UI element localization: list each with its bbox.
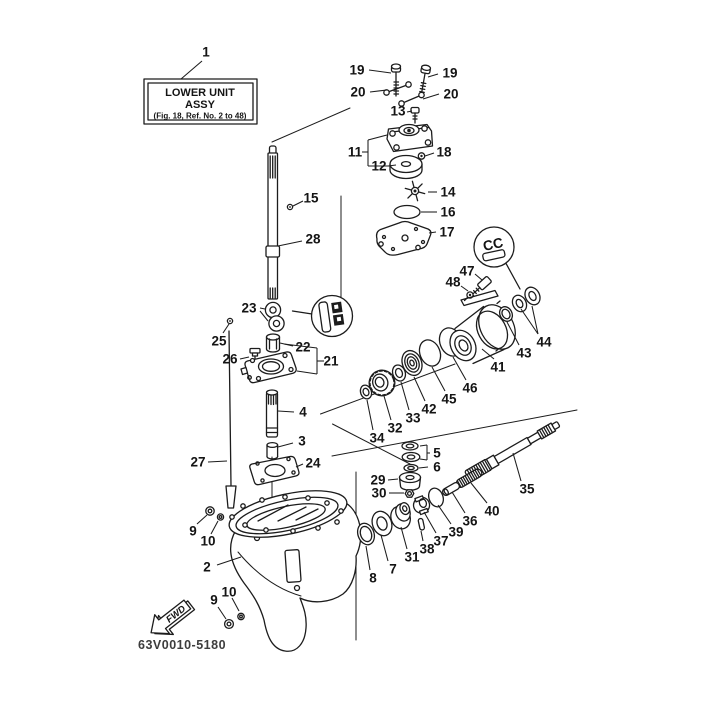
leader-line <box>388 479 398 480</box>
part-14-impeller <box>405 181 424 200</box>
part-10-washer-lower <box>238 613 244 619</box>
leader-line <box>293 201 303 206</box>
leader-line <box>218 607 226 619</box>
part-number-20: 20 <box>350 85 365 100</box>
part-number-17: 17 <box>439 225 454 240</box>
part-number-46: 46 <box>462 381 478 396</box>
leader-line <box>232 598 239 611</box>
leader-line <box>471 483 487 503</box>
part-number-19: 19 <box>442 66 457 81</box>
part-44-oil-seals <box>510 285 543 315</box>
part-number-6: 6 <box>433 460 441 475</box>
part-number-48: 48 <box>445 275 461 290</box>
leader-line <box>181 61 202 79</box>
part-number-40: 40 <box>484 504 499 519</box>
part-number-31: 31 <box>404 550 420 565</box>
leader-line <box>461 286 468 291</box>
drawing-code: 63V0010-5180 <box>138 638 226 652</box>
leader-line <box>381 535 388 561</box>
part-16-oring <box>394 206 420 219</box>
exploded-parts-diagram: LOWER UNIT ASSY (Fig. 18, Ref. No. 2 to … <box>0 0 720 720</box>
part-number-12: 12 <box>371 159 386 174</box>
parts-diagram-page: LOWER UNIT ASSY (Fig. 18, Ref. No. 2 to … <box>0 0 720 720</box>
part-number-34: 34 <box>369 431 385 446</box>
part-11-water-pump-housing <box>387 125 433 152</box>
part-number-37: 37 <box>433 534 448 549</box>
part-19-bolt-left <box>392 64 401 96</box>
part-number-21: 21 <box>323 354 339 369</box>
leader-line <box>366 546 370 570</box>
fwd-arrow: FWD <box>144 593 199 644</box>
part-21-pump-base <box>241 352 296 383</box>
title-line-2: ASSY <box>185 99 216 111</box>
part-number-19: 19 <box>349 63 364 78</box>
part-number-10: 10 <box>200 534 215 549</box>
title-line-3: (Fig. 18, Ref. No. 2 to 48) <box>154 112 247 121</box>
leader-line <box>278 443 293 447</box>
leader-line <box>438 505 451 524</box>
leader-line <box>482 349 494 359</box>
leader-line <box>367 400 373 430</box>
part-number-44: 44 <box>536 335 552 350</box>
part-number-36: 36 <box>462 514 478 529</box>
part-9-bolt-lower <box>225 620 234 629</box>
part-number-41: 41 <box>490 360 506 375</box>
leader-line <box>384 396 391 420</box>
part-38-pin <box>418 518 425 530</box>
part-30-nut <box>405 490 414 497</box>
part-number-9: 9 <box>210 593 218 608</box>
leader-line <box>423 94 439 99</box>
part-6-washer <box>404 465 418 472</box>
part-number-27: 27 <box>190 455 205 470</box>
part-number-35: 35 <box>519 482 535 497</box>
part-number-14: 14 <box>440 185 456 200</box>
part-number-38: 38 <box>419 542 435 557</box>
leader-line <box>240 357 249 359</box>
leader-line <box>419 467 428 468</box>
leader-line <box>260 308 265 309</box>
leader-line <box>421 531 423 541</box>
part-number-28: 28 <box>305 232 321 247</box>
part-number-8: 8 <box>369 571 377 586</box>
part-number-10: 10 <box>221 585 236 600</box>
leader-line <box>401 527 407 549</box>
part-number-4: 4 <box>299 405 307 420</box>
leader-line <box>208 461 227 462</box>
leader-line <box>369 70 391 73</box>
part-13-bolt <box>411 108 419 124</box>
leader-line <box>278 411 294 412</box>
leader-line <box>475 274 482 280</box>
leader-line <box>197 515 207 524</box>
part-20-pin-left <box>384 82 411 95</box>
part-number-42: 42 <box>421 402 436 417</box>
part-number-18: 18 <box>436 145 452 160</box>
part-number-3: 3 <box>298 434 306 449</box>
part-12-outer-plate <box>390 156 422 179</box>
part-15-dowel-pin <box>287 204 292 209</box>
leader-line <box>368 135 387 140</box>
shim-plate <box>461 291 498 306</box>
part-number-2: 2 <box>203 560 211 575</box>
leader-line <box>401 382 409 410</box>
part-number-33: 33 <box>405 411 421 426</box>
part-number-39: 39 <box>448 525 463 540</box>
part-28-drive-shaft <box>266 146 280 299</box>
part-18-fitting <box>418 153 424 159</box>
leader-line <box>420 445 427 446</box>
part-number-11: 11 <box>348 145 363 160</box>
part-number-20: 20 <box>443 87 458 102</box>
leader-line <box>452 492 465 513</box>
part-2-gear-case <box>225 482 361 651</box>
part-number-45: 45 <box>441 392 457 407</box>
part-number-30: 30 <box>371 486 386 501</box>
leader-line <box>513 453 521 481</box>
seal-section-detail-circle <box>293 296 353 337</box>
part-41-bearing-housing <box>445 299 523 366</box>
leader-line <box>278 241 302 246</box>
title-line-1: LOWER UNIT <box>165 87 235 99</box>
part-number-1: 1 <box>202 45 210 60</box>
part-number-25: 25 <box>211 334 227 349</box>
part-22-bushing <box>267 334 280 352</box>
part-number-9: 9 <box>189 524 197 539</box>
part-36-pin <box>441 481 460 496</box>
part-number-16: 16 <box>440 205 456 220</box>
part-number-5: 5 <box>433 446 441 461</box>
part-number-24: 24 <box>305 456 321 471</box>
part-number-26: 26 <box>222 352 238 367</box>
part-3-bushing <box>267 443 278 459</box>
part-number-13: 13 <box>390 104 406 119</box>
part-4-shaft-sleeve <box>267 390 278 437</box>
part-17-gasket-plate <box>377 222 431 256</box>
leader-line <box>211 521 218 534</box>
part-25-pin <box>227 318 232 323</box>
title-box: LOWER UNIT ASSY (Fig. 18, Ref. No. 2 to … <box>144 79 257 124</box>
part-number-23: 23 <box>241 301 257 316</box>
part-number-32: 32 <box>387 421 402 436</box>
part-number-43: 43 <box>516 346 532 361</box>
leader-line <box>297 371 317 374</box>
leader-line <box>420 459 427 460</box>
part-number-47: 47 <box>459 264 474 279</box>
leader-line <box>414 377 425 401</box>
part-number-15: 15 <box>303 191 319 206</box>
part-9-bolt-upper <box>206 507 214 515</box>
part-23-oil-seals <box>265 302 284 331</box>
leader-line <box>428 74 438 77</box>
part-10-washer-upper <box>217 514 223 520</box>
leader-line <box>424 512 436 533</box>
leader-line <box>425 153 434 156</box>
part-number-7: 7 <box>389 562 397 577</box>
part-5-washer-set <box>402 442 420 462</box>
part-29-pinion-gear <box>400 473 421 491</box>
leader-line <box>223 324 229 333</box>
